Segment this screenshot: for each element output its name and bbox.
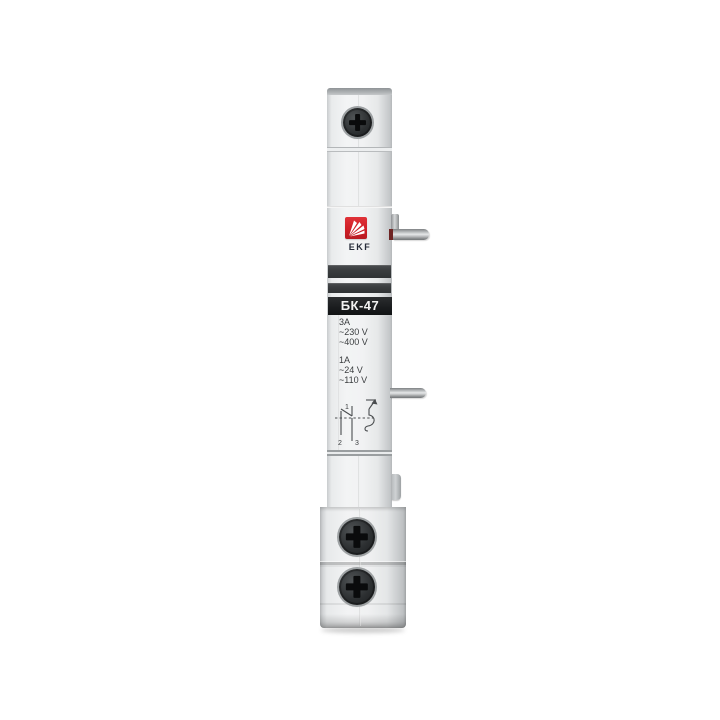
product-photo: EKF БК-47 3A ~230 V ~400 V 1A ~24 V ~110… — [0, 0, 720, 720]
rating-line: 1A — [339, 355, 391, 365]
ratings-secondary: 1A ~24 V ~110 V — [339, 355, 391, 385]
rating-line: ~24 V — [339, 365, 391, 375]
diagram-terminal-3: 3 — [355, 440, 359, 447]
device-top-cap — [327, 88, 392, 95]
diagram-terminal-2: 2 — [338, 440, 342, 447]
rating-line: ~230 V — [339, 327, 391, 337]
diagram-terminal-1: 1 — [345, 404, 349, 411]
circuit-diagram: 1 2 3 — [334, 395, 380, 451]
model-label: БК-47 — [328, 297, 392, 315]
decorative-band — [328, 283, 391, 293]
side-latch-tab — [392, 474, 401, 500]
rating-line: ~400 V — [339, 337, 391, 347]
actuator-pin — [390, 388, 426, 398]
rating-line: 3A — [339, 317, 391, 327]
terminal-screw-icon — [339, 569, 375, 605]
mould-seam — [358, 152, 360, 206]
logo-fan-icon — [345, 217, 367, 239]
mounting-screw-icon — [343, 108, 372, 137]
mould-seam — [358, 456, 360, 507]
trip-lever-pin — [393, 229, 429, 240]
rating-line: ~110 V — [339, 375, 391, 385]
terminal-screw-icon — [339, 519, 375, 555]
decorative-band — [328, 265, 391, 278]
ekf-logo-icon — [345, 217, 367, 239]
drop-shadow — [321, 627, 405, 633]
brand-wordmark: EKF — [334, 242, 386, 252]
ratings-primary: 3A ~230 V ~400 V — [339, 317, 391, 347]
terminal-block-seam — [320, 561, 406, 567]
